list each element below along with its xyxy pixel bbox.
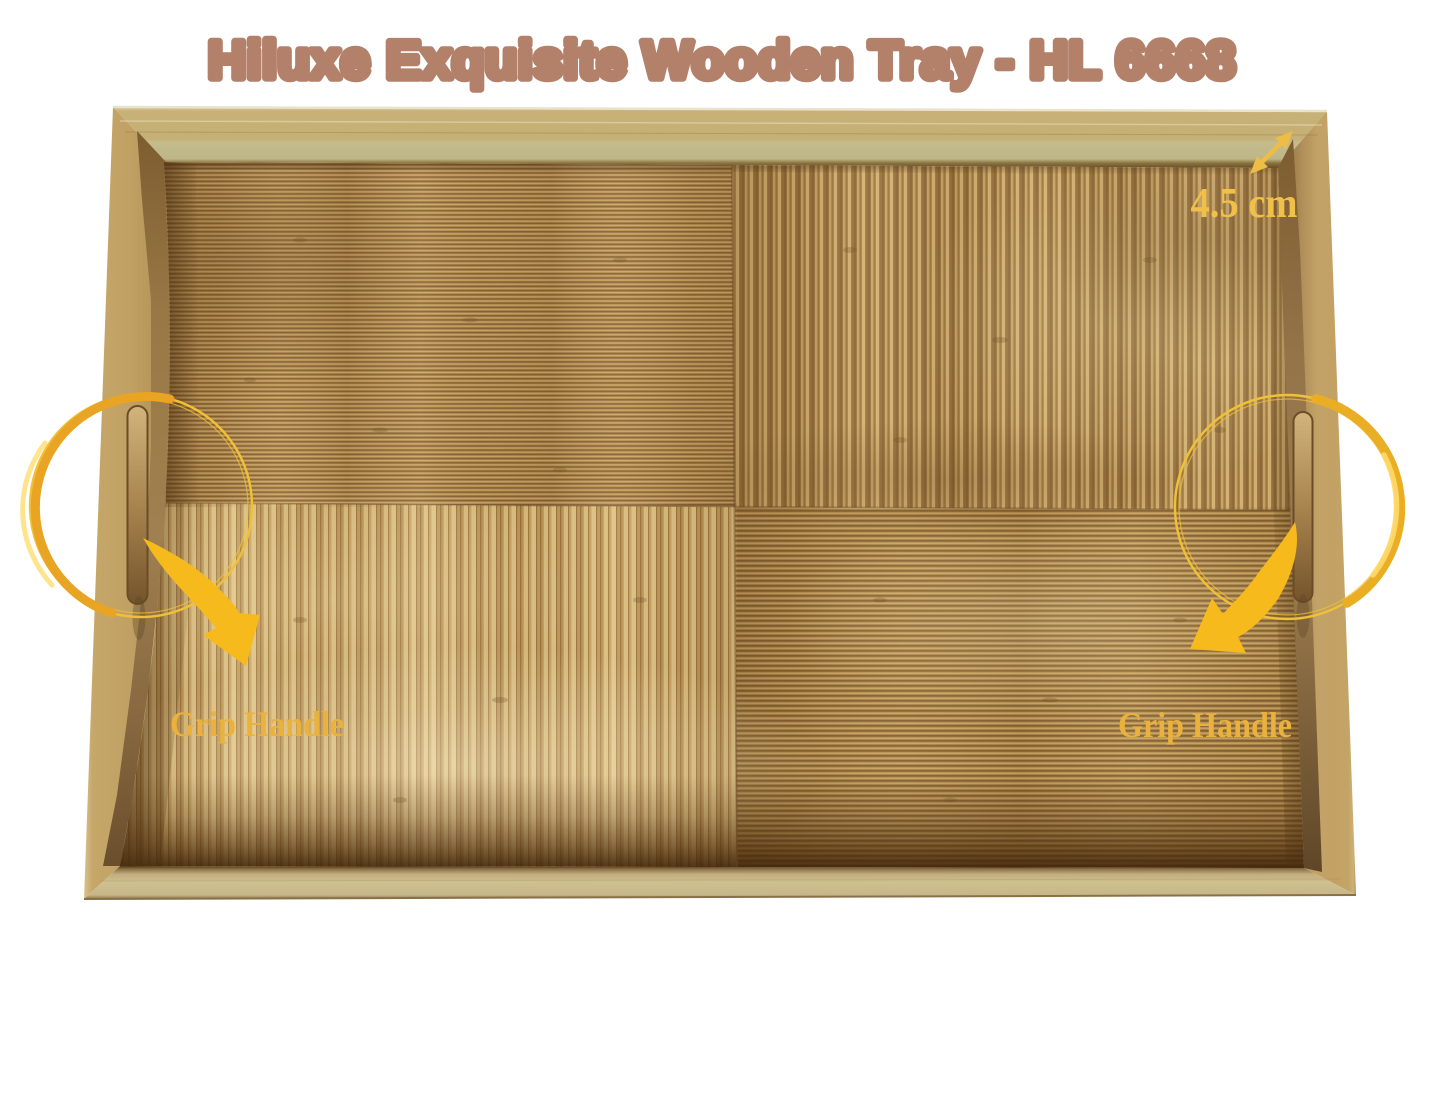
svg-text:Hiluxe Exquisite Wooden Tray -: Hiluxe Exquisite Wooden Tray - HL 6668 <box>208 31 1236 90</box>
svg-text:4.5 cm: 4.5 cm <box>1191 181 1298 227</box>
svg-text:Grip Handle: Grip Handle <box>1118 705 1292 745</box>
svg-text:Grip Handle: Grip Handle <box>170 704 344 744</box>
